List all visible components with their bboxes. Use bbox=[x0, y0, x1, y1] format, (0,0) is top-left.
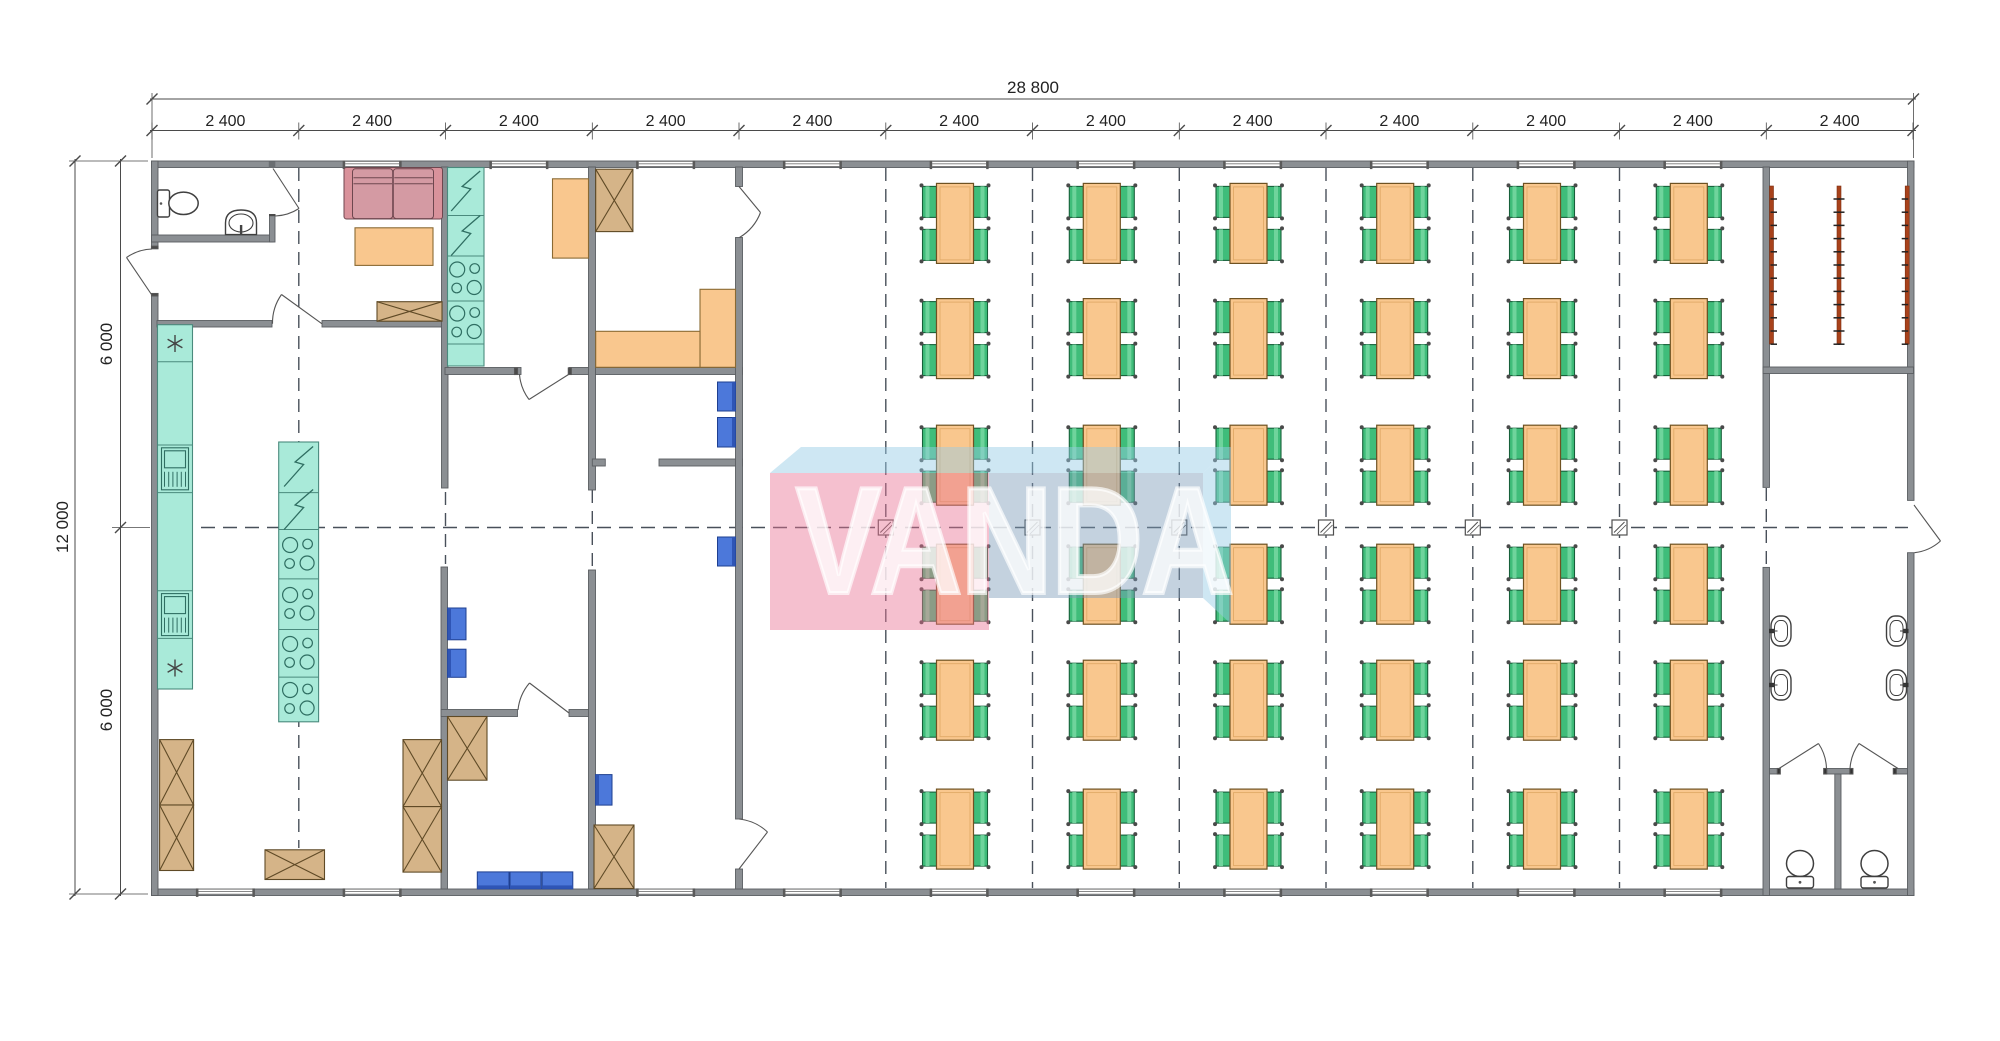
svg-text:28 800: 28 800 bbox=[1007, 78, 1059, 97]
svg-text:2 400: 2 400 bbox=[352, 113, 392, 130]
svg-text:2 400: 2 400 bbox=[792, 113, 832, 130]
svg-text:2 400: 2 400 bbox=[1820, 113, 1860, 130]
svg-text:2 400: 2 400 bbox=[939, 113, 979, 130]
svg-text:6 000: 6 000 bbox=[97, 689, 116, 732]
svg-text:VANDA: VANDA bbox=[796, 455, 1232, 625]
svg-text:2 400: 2 400 bbox=[1086, 113, 1126, 130]
svg-text:2 400: 2 400 bbox=[1379, 113, 1419, 130]
svg-text:2 400: 2 400 bbox=[205, 113, 245, 130]
svg-text:2 400: 2 400 bbox=[1673, 113, 1713, 130]
svg-text:12 000: 12 000 bbox=[53, 501, 72, 553]
svg-text:6 000: 6 000 bbox=[97, 323, 116, 366]
svg-text:2 400: 2 400 bbox=[646, 113, 686, 130]
svg-text:2 400: 2 400 bbox=[1526, 113, 1566, 130]
svg-text:2 400: 2 400 bbox=[499, 113, 539, 130]
svg-text:2 400: 2 400 bbox=[1233, 113, 1273, 130]
